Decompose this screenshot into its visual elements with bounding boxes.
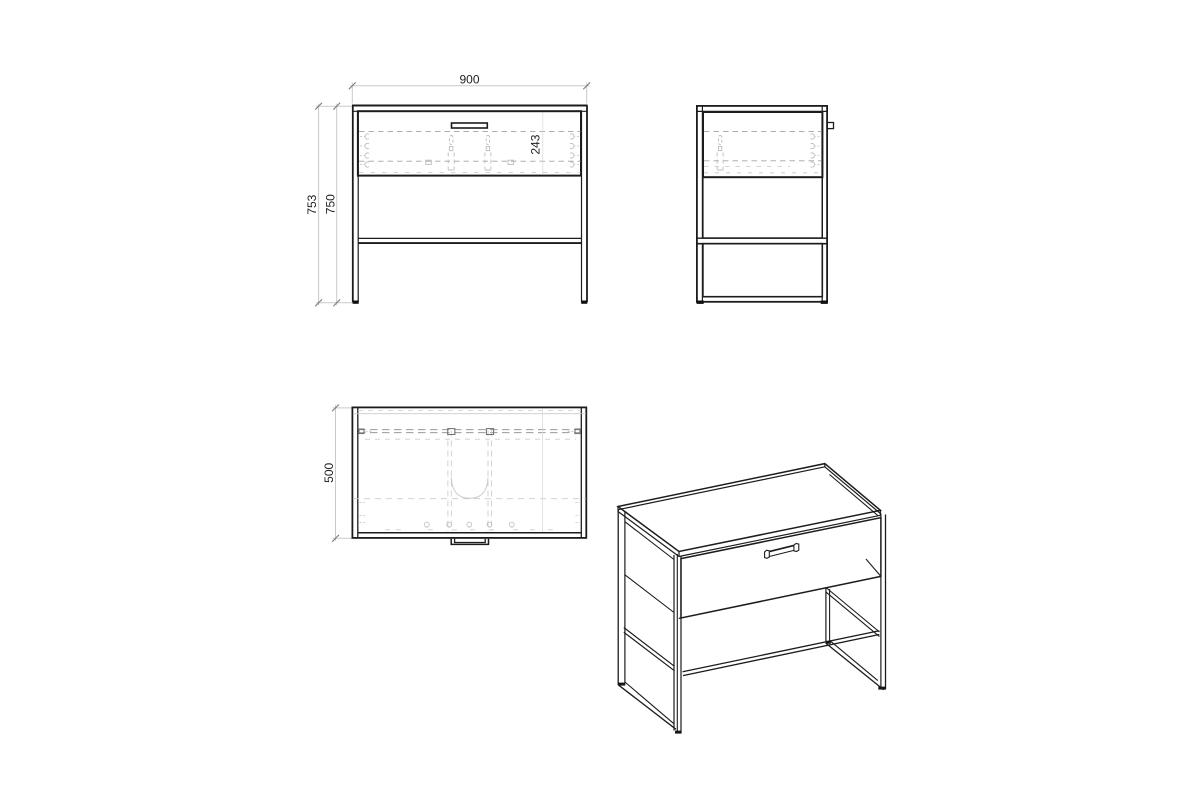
svg-text:900: 900 [459, 72, 479, 86]
svg-text:753: 753 [305, 194, 319, 214]
svg-text:750: 750 [323, 194, 337, 214]
svg-text:500: 500 [322, 462, 336, 482]
svg-text:243: 243 [529, 134, 543, 154]
